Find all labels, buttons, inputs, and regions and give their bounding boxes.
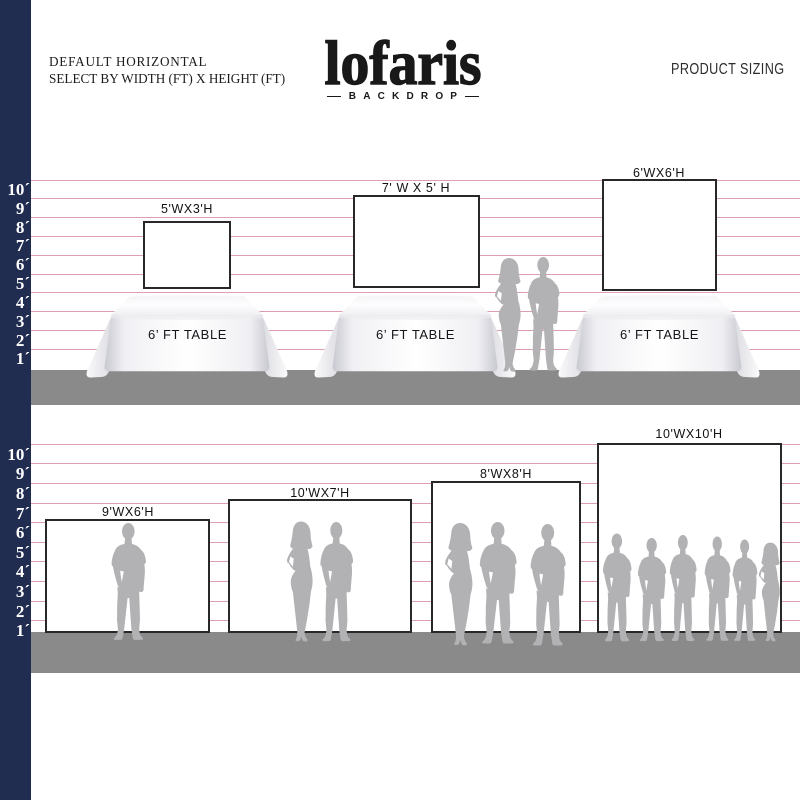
svg-text:lofaris: lofaris [325,37,482,89]
